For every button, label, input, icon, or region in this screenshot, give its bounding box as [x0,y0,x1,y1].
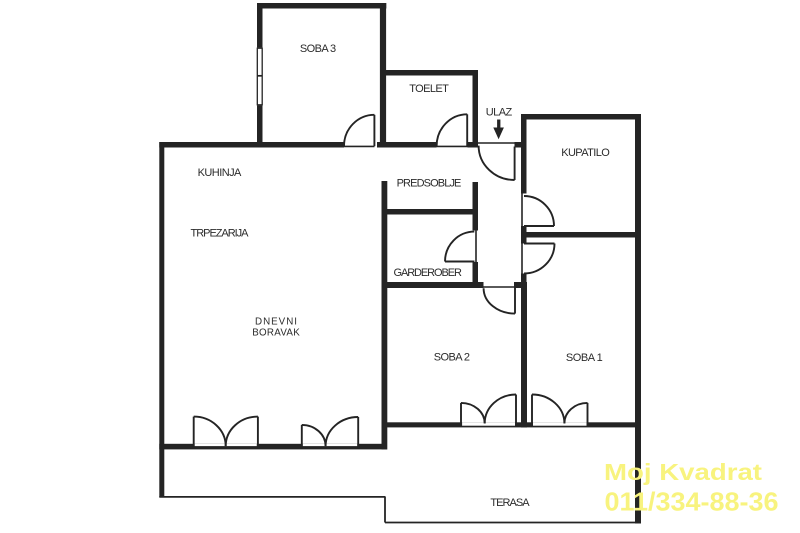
svg-text:Moj Kvadrat: Moj Kvadrat [604,459,762,485]
svg-text:BORAVAK: BORAVAK [252,328,300,339]
svg-text:ULAZ: ULAZ [486,107,513,119]
svg-text:GARDEROBER: GARDEROBER [394,267,462,279]
svg-text:TRPEZARIJA: TRPEZARIJA [191,228,250,240]
svg-text:PREDSOBLJE: PREDSOBLJE [397,177,462,189]
svg-text:KUPATILO: KUPATILO [561,147,610,159]
svg-text:011/334-88-36: 011/334-88-36 [605,489,779,517]
svg-text:KUHINJA: KUHINJA [198,167,242,179]
svg-text:DNEVNI: DNEVNI [255,317,297,328]
svg-text:TERASA: TERASA [490,497,530,509]
svg-text:TOELET: TOELET [409,83,449,95]
svg-text:SOBA 2: SOBA 2 [434,351,470,363]
svg-text:SOBA 1: SOBA 1 [566,352,603,364]
svg-text:SOBA 3: SOBA 3 [300,43,336,55]
